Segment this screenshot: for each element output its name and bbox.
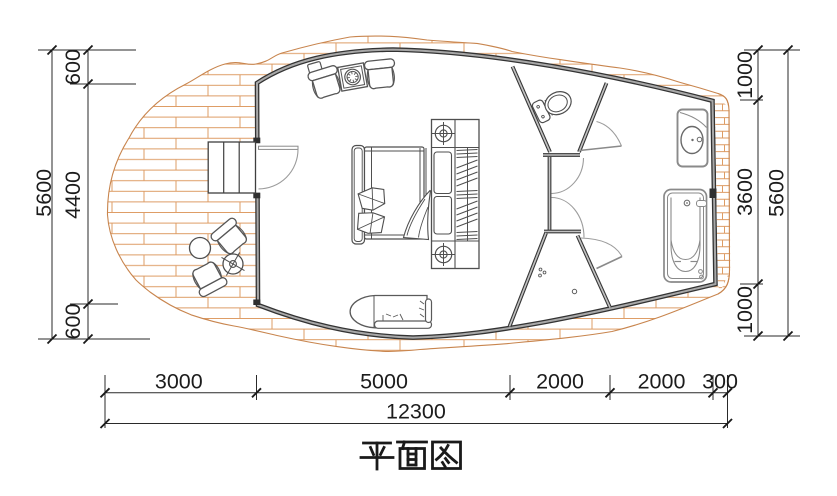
svg-text:2000: 2000 [638,370,686,394]
svg-text:5600: 5600 [32,169,56,217]
svg-text:3600: 3600 [733,168,757,216]
svg-text:300: 300 [702,370,738,394]
svg-text:1000: 1000 [733,51,757,99]
svg-text:1000: 1000 [733,286,757,334]
svg-text:600: 600 [61,304,85,340]
svg-text:12300: 12300 [386,400,446,424]
svg-text:5600: 5600 [765,169,789,217]
svg-text:2000: 2000 [536,370,584,394]
svg-text:4400: 4400 [61,171,85,219]
svg-text:600: 600 [61,49,85,85]
svg-text:5000: 5000 [360,370,408,394]
svg-text:3000: 3000 [155,370,203,394]
